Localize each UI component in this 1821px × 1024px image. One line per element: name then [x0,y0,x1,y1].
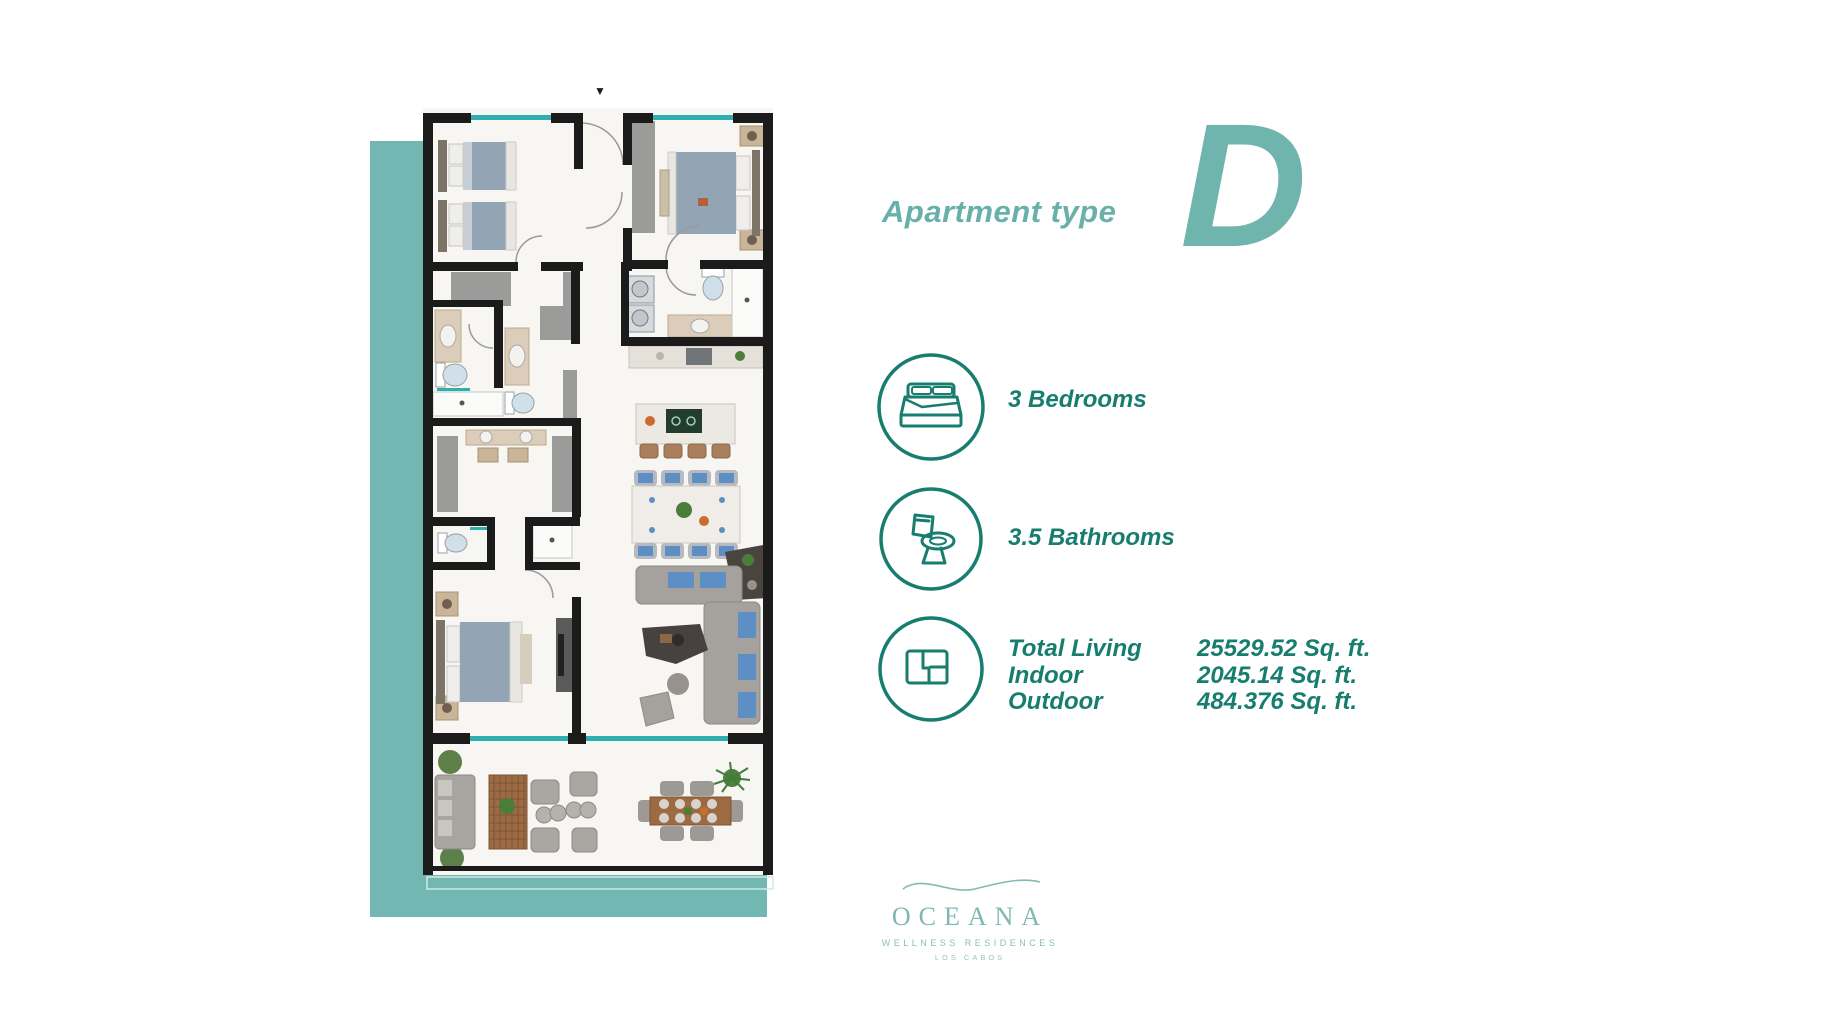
floor-plan-icon [907,651,947,683]
indoor-value: 2045.14 Sq. ft. [1197,663,1370,690]
page-title: Apartment type [882,194,1116,230]
twin-bed-2 [438,200,516,252]
brand-subtitle: WELLNESS RESIDENCES [845,938,1095,948]
apartment-type-letter: D [1180,98,1307,274]
floor-plan [0,0,1821,1024]
area-labels: Total Living Indoor Outdoor [1008,636,1142,716]
outdoor-value: 484.376 Sq. ft. [1197,689,1370,716]
apartment-sheet: ▼ Apartment type D 3 Bedrooms 3.5 Bathro… [0,0,1821,1024]
brand-logo: OCEANA WELLNESS RESIDENCES LOS CABOS [845,896,1095,962]
outdoor-label: Outdoor [1008,689,1142,716]
brand-location: LOS CABOS [845,953,1095,962]
shower-room [533,521,572,558]
entry-marker: ▼ [594,84,606,98]
indoor-label: Indoor [1008,663,1142,690]
bedrooms-label: 3 Bedrooms [1008,386,1147,414]
kitchen [629,346,763,368]
area-values: 25529.52 Sq. ft. 2045.14 Sq. ft. 484.376… [1197,636,1370,716]
wave-icon [903,880,1040,890]
total-living-label: Total Living [1008,636,1142,663]
brand-name: OCEANA [845,902,1095,932]
toilet-icon [913,515,954,563]
slat-table [489,775,527,849]
bathrooms-label: 3.5 Bathrooms [1008,524,1175,552]
bed-icon [901,384,961,426]
total-living-value: 25529.52 Sq. ft. [1197,636,1370,663]
twin-bed-1 [438,140,516,192]
